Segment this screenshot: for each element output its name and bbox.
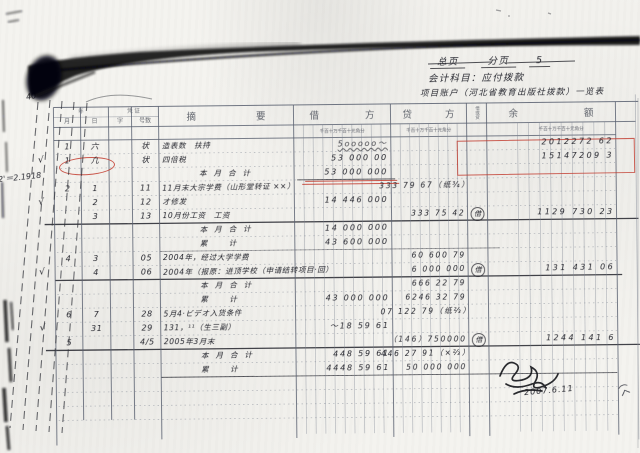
cell-day: 31 xyxy=(84,322,110,336)
header-debit: 借方 xyxy=(293,104,390,125)
cell-summary: 累 计 xyxy=(200,236,244,250)
cell-summary: 2004年，经过大学学费 xyxy=(163,251,249,265)
cell-debit: 53 000 00 xyxy=(296,151,388,166)
cell-voucher-no: 4/5 xyxy=(135,335,160,349)
cell-voucher-no: 11 xyxy=(133,181,158,195)
cell-debit: ～18 59 61 xyxy=(298,319,390,334)
cell-summary: 累 计 xyxy=(201,362,245,376)
cell-debit: 14 000 000 xyxy=(297,221,389,237)
cell-credit: 446 27 91（×⅔） xyxy=(381,346,467,361)
cell-month: 4 xyxy=(56,252,81,266)
cell-balance: 15147209 3 xyxy=(490,149,614,164)
header-hao: 号数 xyxy=(132,116,159,126)
cell-credit: 50 000 000 xyxy=(381,360,467,375)
cell-summary: 累 计 xyxy=(200,293,244,307)
account-title: 会计科目：应付拨款 xyxy=(428,69,524,84)
cell-summary: 5月4·ビデオ入货条件 xyxy=(163,306,242,321)
cell-summary: 131，¹¹（生三副） xyxy=(164,321,236,336)
cell-summary: 2005年3月末 xyxy=(164,335,215,349)
check-mark: √ xyxy=(40,324,46,334)
page-header-line: 总页 分页 5 xyxy=(430,48,551,69)
cell-summary: 本月合计 xyxy=(200,278,258,293)
scanned-ledger-page: 总页 分页 5 会计科目：应付拨款 项目账户（河北省教育出版社拨款）一览表 2'… xyxy=(0,0,640,453)
header-balance: 余额 xyxy=(486,102,615,123)
header-summary: 摘要 xyxy=(158,105,293,126)
signature-scribble xyxy=(470,350,600,410)
cell-voucher-no: 28 xyxy=(134,307,159,321)
cell-direction: 借 xyxy=(472,333,486,347)
header-year: 年 xyxy=(53,107,108,118)
cell-day: 3 xyxy=(83,210,109,224)
cell-voucher-no: 13 xyxy=(134,209,159,223)
header-voucher: 凭 证 xyxy=(108,106,158,117)
cell-debit: 43 600 000 xyxy=(297,235,389,250)
page-header-field1: 总页 xyxy=(430,56,466,69)
cell-credit: 07 122 79（纸⅔） xyxy=(380,304,466,319)
header-units: 千百十万千百十元角分 xyxy=(391,123,467,137)
cell-credit: （146）750000 xyxy=(381,332,467,346)
project-title: 项目账户（河北省教育出版社拨款）一览表 xyxy=(420,85,604,99)
cell-day: 4 xyxy=(83,266,109,280)
check-mark: √ xyxy=(38,198,44,208)
cell-voucher-no: 状 xyxy=(133,139,158,153)
check-mark: √ xyxy=(38,156,44,166)
cell-summary: 本月合计 xyxy=(199,167,257,181)
cell-balance: 131 431 06 xyxy=(491,260,615,276)
cell-credit: 333 79 67（纸¾） xyxy=(379,178,465,193)
cell-direction: 借 xyxy=(471,263,485,277)
page-header-field2: 分页 xyxy=(480,56,516,69)
header-month: 月 xyxy=(54,117,81,127)
cell-credit: 60 600 79 xyxy=(380,248,466,262)
cell-summary: 造表数 扶持 xyxy=(162,139,211,154)
header-credit: 贷方 xyxy=(390,103,466,124)
cell-month: 1 xyxy=(55,154,80,168)
cell-debit: 5ooooo～ xyxy=(296,137,388,153)
cell-month: 2 xyxy=(55,182,80,196)
cell-direction: 借 xyxy=(470,207,484,221)
cell-summary: 10月份工资 工资 xyxy=(163,209,231,223)
cell-debit: 14 446 000 xyxy=(296,193,388,208)
grid-line xyxy=(635,94,639,439)
cell-summary: 11月末大宗学费（山形堂转证 ××） xyxy=(162,179,295,195)
cell-debit: 43 000 000 xyxy=(297,291,389,305)
cell-summary: 本月合计 xyxy=(200,222,258,237)
cell-debit: 448 59 61 xyxy=(298,347,390,363)
cell-month: 5 xyxy=(57,336,82,350)
cell-day: 凢 xyxy=(82,154,108,168)
cell-summary: 四倍税 xyxy=(162,153,186,167)
cell-voucher-no: 05 xyxy=(134,251,159,265)
cell-debit: 53 000 000 xyxy=(296,165,388,179)
cell-month: 1 xyxy=(55,140,80,154)
cell-balance: 1244 141 6 xyxy=(492,331,616,345)
cell-day: 六 xyxy=(82,140,108,154)
check-mark: √ xyxy=(39,268,45,278)
cell-debit: 4448 59 61 xyxy=(298,361,390,376)
cell-day: 7 xyxy=(83,308,109,322)
cell-summary: 本月合计 xyxy=(201,348,259,363)
cell-balance: 1129 730 23 xyxy=(491,205,615,219)
header-direction: 借或贷 xyxy=(467,103,485,123)
header-day: 日 xyxy=(81,117,109,127)
cell-summary: 才修发 xyxy=(162,195,186,209)
cell-day: 1 xyxy=(82,182,108,196)
cell-month: 6 xyxy=(56,308,81,322)
cell-voucher-no: 12 xyxy=(133,195,158,209)
cell-credit: 6246 32 79 xyxy=(380,290,466,304)
cell-credit: 6 000 000 xyxy=(380,262,466,277)
cell-summary: 2004年（报原：进顶学校（申请结转项目·回） xyxy=(163,263,333,280)
cell-credit: 333 75 42 xyxy=(380,206,466,220)
grid-line xyxy=(59,415,618,421)
cell-day: 2 xyxy=(82,196,108,210)
cell-voucher-no: 29 xyxy=(135,321,160,335)
header-zi: 字 xyxy=(109,117,132,127)
cell-day: 3 xyxy=(83,252,109,266)
cell-voucher-no: 06 xyxy=(134,265,159,279)
page-number: 5 xyxy=(529,55,550,67)
cell-credit: 666 22 79 xyxy=(380,276,466,291)
cell-voucher-no: 状 xyxy=(133,153,158,167)
